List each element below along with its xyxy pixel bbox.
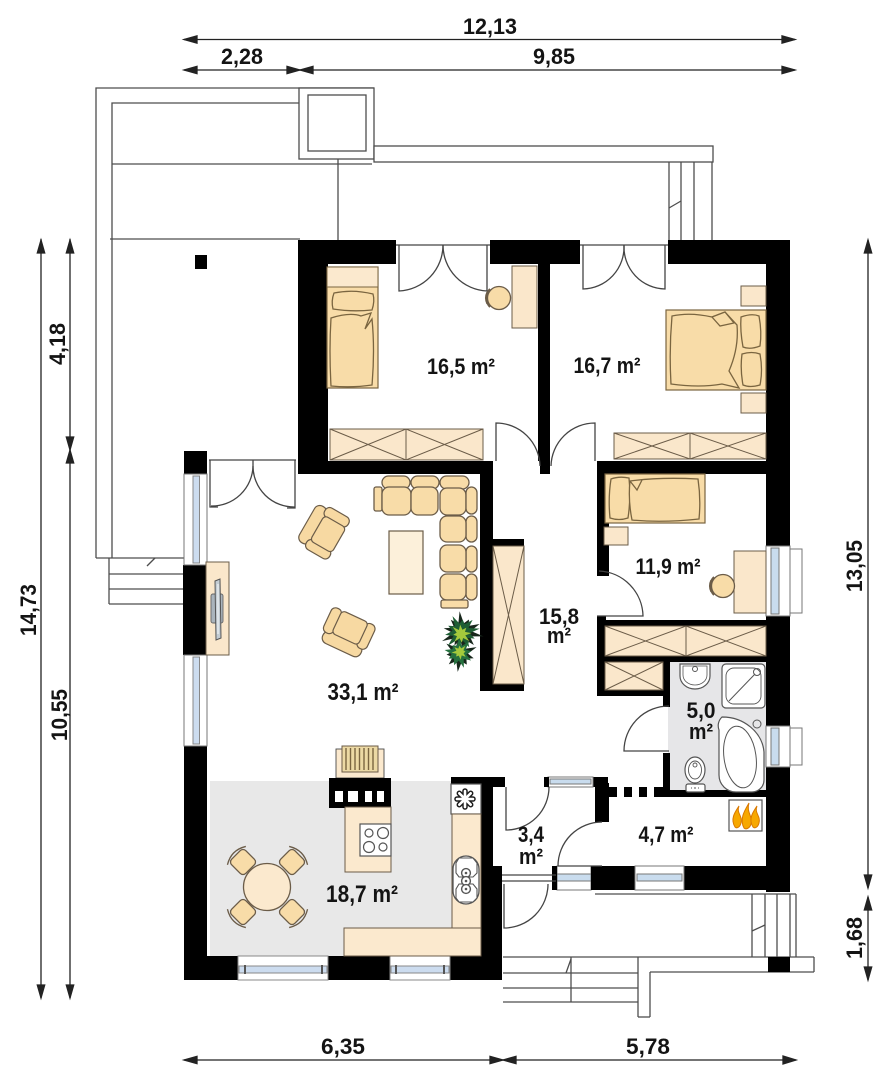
svg-text:6,35: 6,35 <box>321 1034 365 1059</box>
svg-text:16,7 m²: 16,7 m² <box>574 353 641 378</box>
svg-text:18,7 m²: 18,7 m² <box>326 881 398 908</box>
svg-text:12,13: 12,13 <box>463 14 517 39</box>
svg-text:1,68: 1,68 <box>842 917 867 959</box>
svg-text:33,1 m²: 33,1 m² <box>328 679 399 706</box>
svg-text:11,9 m²: 11,9 m² <box>636 554 701 579</box>
svg-text:14,73: 14,73 <box>16 584 41 636</box>
svg-text:m²: m² <box>547 623 571 648</box>
svg-text:16,5 m²: 16,5 m² <box>427 354 495 379</box>
svg-text:5,78: 5,78 <box>626 1034 670 1059</box>
svg-text:4,18: 4,18 <box>45 323 70 365</box>
svg-text:2,28: 2,28 <box>221 44 263 69</box>
svg-text:9,85: 9,85 <box>533 44 575 69</box>
svg-text:13,05: 13,05 <box>842 540 867 592</box>
svg-text:m²: m² <box>689 719 713 744</box>
svg-text:10,55: 10,55 <box>47 689 72 741</box>
svg-text:m²: m² <box>519 844 543 869</box>
svg-text:4,7 m²: 4,7 m² <box>639 822 694 847</box>
